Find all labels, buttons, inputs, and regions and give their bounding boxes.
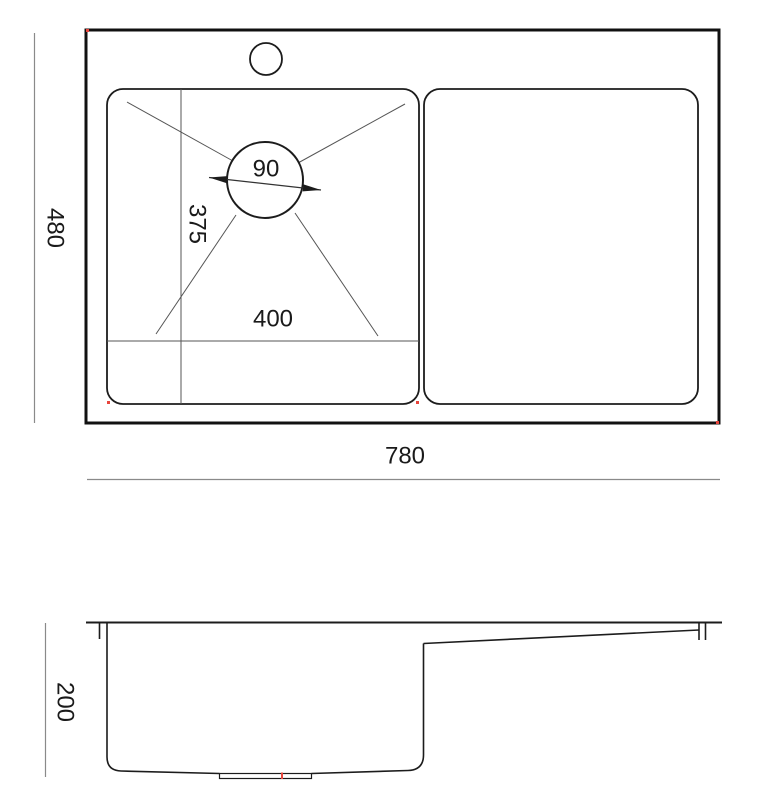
side-view-drainboard-slope [424,630,700,644]
side-view-bowl-right-wall [312,644,424,774]
drain-locator-diagonal-top-left [127,102,233,161]
overall-width-label: 780 [385,443,425,470]
top-view: 90 375 400 [86,29,719,424]
top-view-dimensions: 480 780 [35,33,721,480]
snap-marker-outer-top-left [86,29,89,32]
overall-depth-label: 480 [42,208,69,248]
drain-diameter-label: 90 [253,156,280,183]
snap-marker-outer-bottom-right [716,421,719,424]
snap-marker-bowl-bottom-right [416,401,419,404]
faucet-hole [250,43,282,75]
side-height-label: 200 [52,682,79,722]
side-view: 200 [46,623,723,780]
drain-locator-diagonal-bottom-right [295,213,378,336]
bowl-width-label: 400 [253,306,293,333]
drainboard-top-view [424,89,698,404]
side-view-bowl-left-wall-and-bottom [107,623,220,774]
sink-technical-drawing: 90 375 400 480 780 [0,0,759,800]
drain-diameter-arrowhead-right [303,184,321,191]
snap-marker-bowl-bottom-left [107,401,110,404]
sink-bowl-top-view [107,89,419,404]
drain-locator-diagonal-top-right [298,104,405,163]
bowl-depth-label: 375 [184,204,211,244]
side-view-drain-fitting [220,774,312,779]
drawing-canvas: 90 375 400 480 780 [0,0,759,800]
drain-diameter-arrowhead-left [209,176,227,183]
